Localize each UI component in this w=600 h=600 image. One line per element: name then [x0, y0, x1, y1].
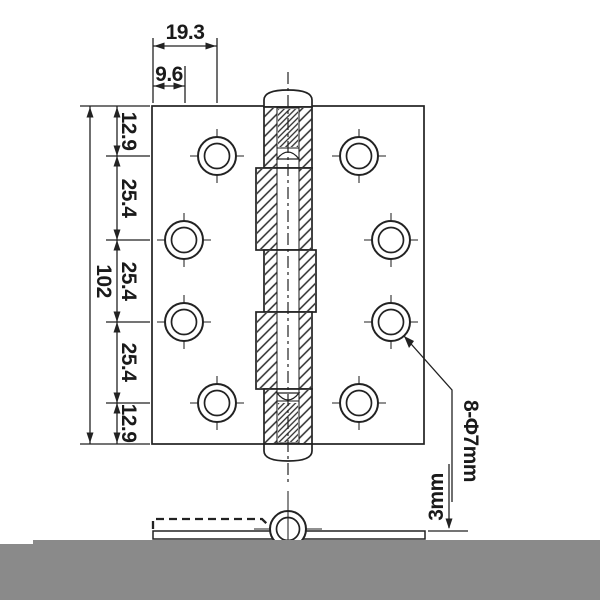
- dim-left-segment-label: 25.4: [117, 179, 140, 219]
- dim-top-outer-label: 19.3: [166, 21, 205, 44]
- dim-top-inner-label: 9.6: [155, 63, 183, 86]
- dim-left-segment-label: 12.9: [117, 112, 140, 151]
- dim-left-segment-label: 25.4: [117, 262, 140, 302]
- dim-left-segment-label: 12.9: [117, 404, 140, 443]
- dim-left-segment-label: 25.4: [117, 343, 140, 383]
- hinge-barrel: [256, 72, 316, 482]
- dim-left-total-label: 102: [92, 264, 115, 298]
- hinge-technical-drawing: 19.3 9.6 102 12.9 25.4 25.4 25.4 12.9 8-…: [0, 0, 600, 600]
- hole-callout-label: 8-Φ7mm: [459, 400, 482, 482]
- thickness-label: 3mm: [425, 473, 448, 521]
- mounting-surface: [0, 540, 600, 600]
- drawing-canvas: 19.3 9.6 102 12.9 25.4 25.4 25.4 12.9 8-…: [0, 0, 600, 600]
- surface-step: [0, 540, 33, 544]
